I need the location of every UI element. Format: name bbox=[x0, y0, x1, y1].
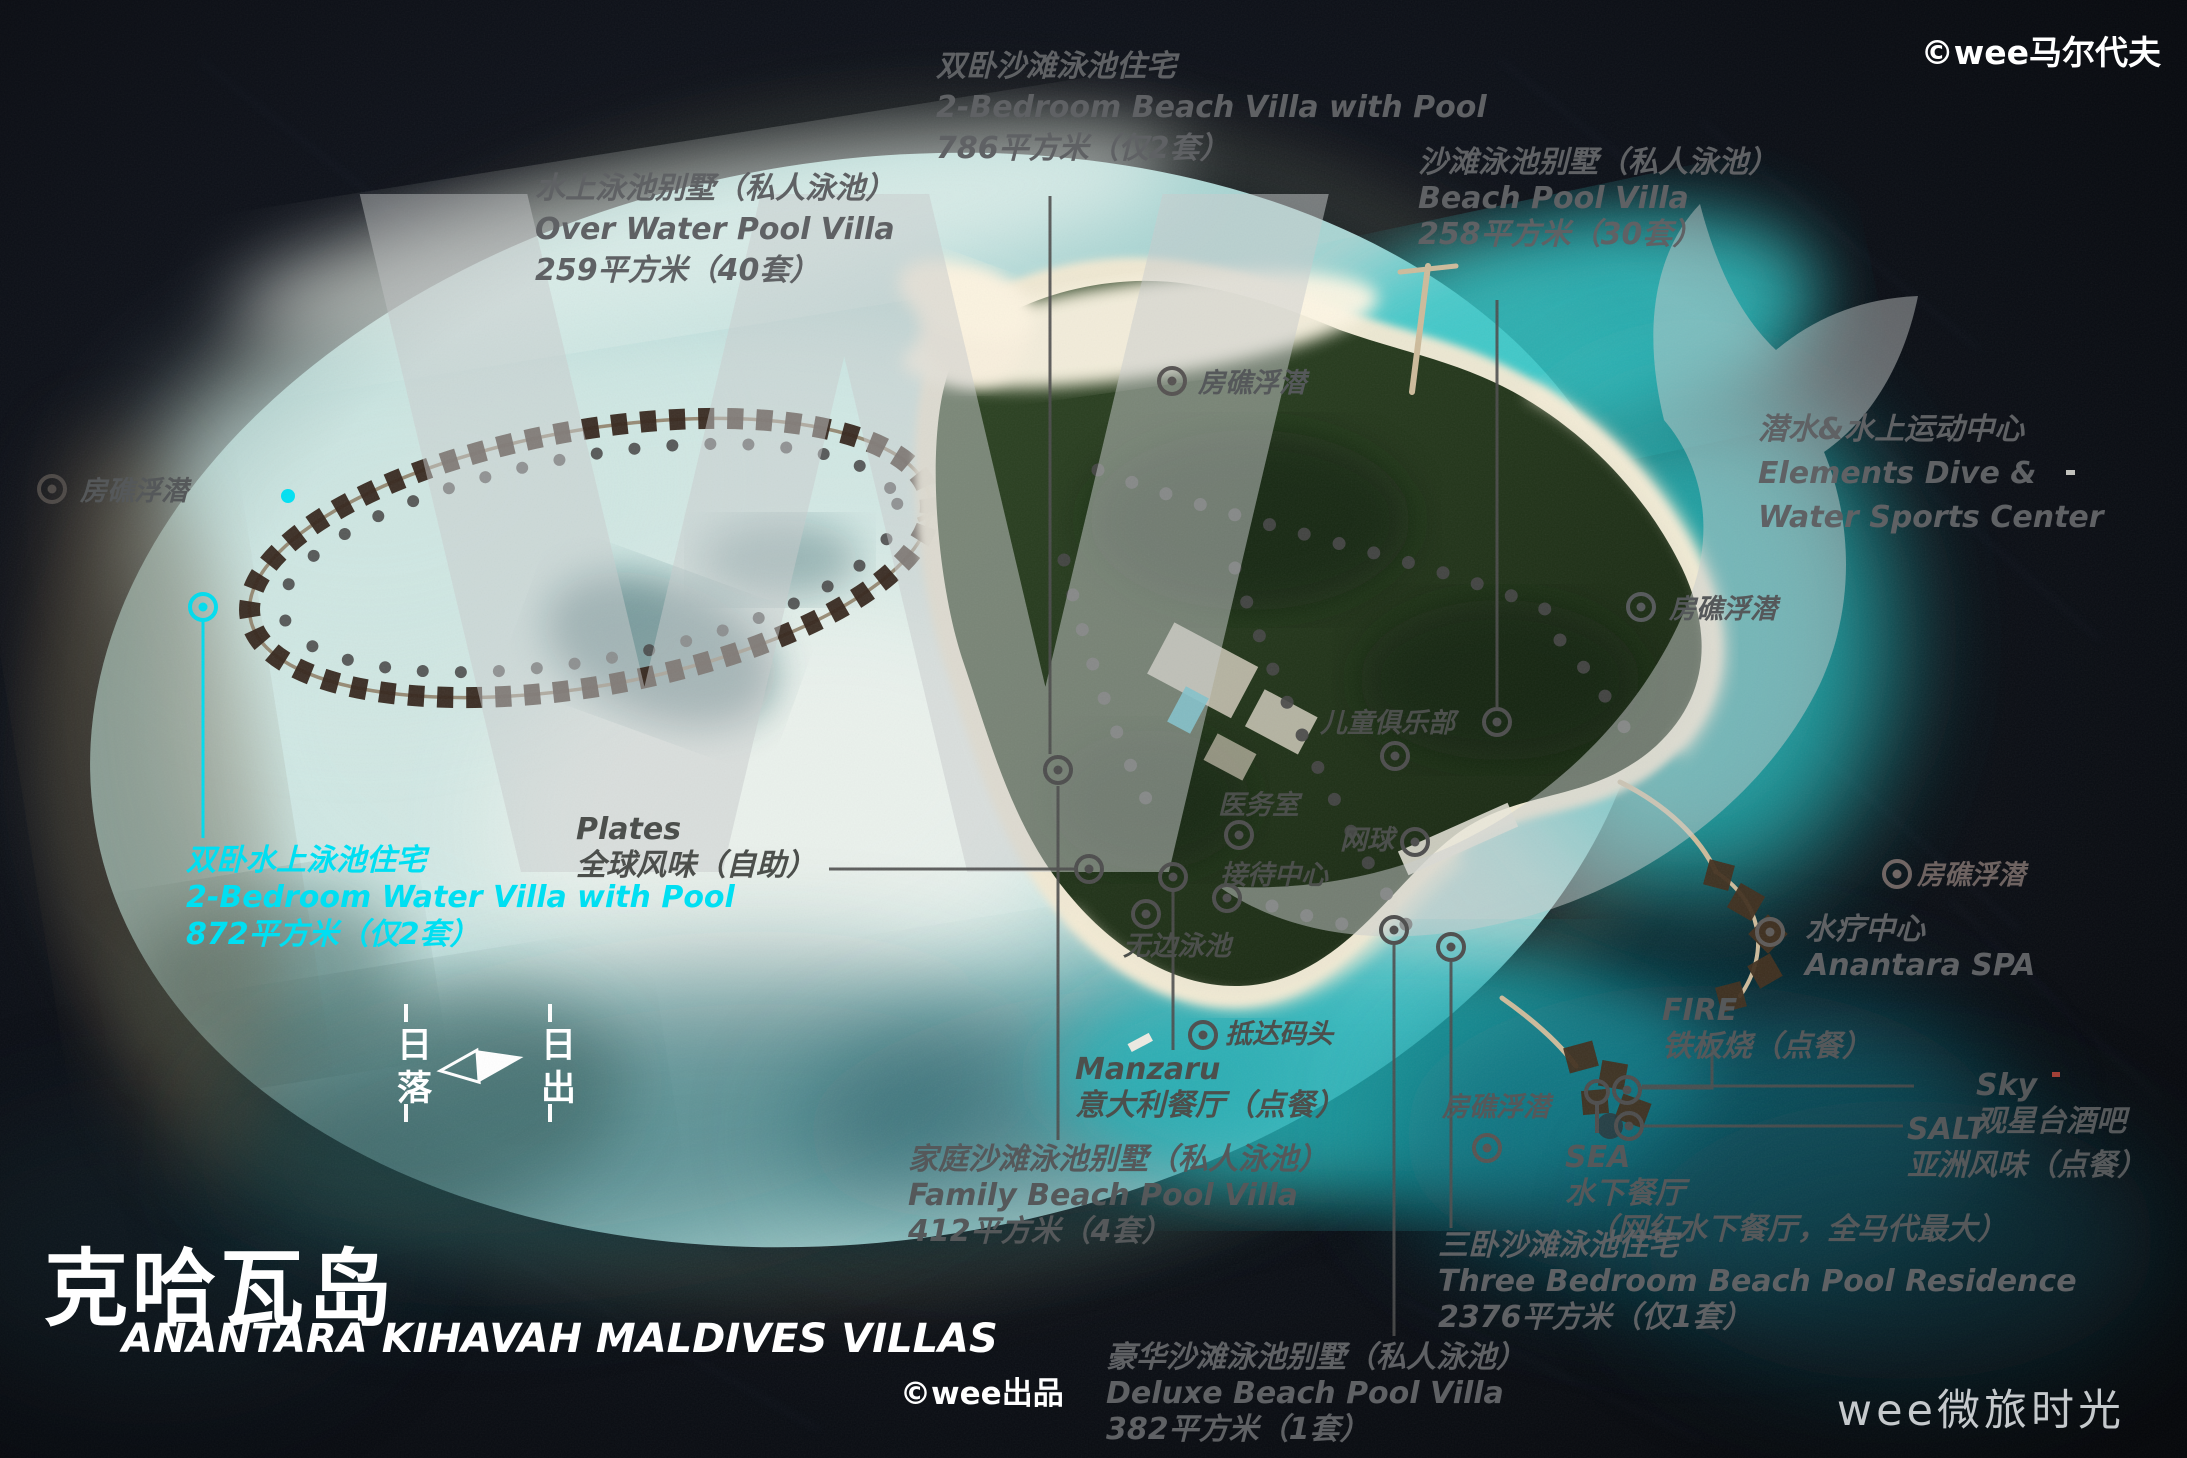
compass-sunrise-label: 日出 bbox=[530, 1026, 581, 1112]
credit-text: ©wee出品 bbox=[900, 1368, 1064, 1413]
label-reception: 接待中心 bbox=[1220, 858, 1328, 894]
label-plates-restaurant: Plates 全球风味（自助） bbox=[576, 812, 816, 884]
watermark-bottom-right: wee微旅时光 bbox=[1837, 1376, 2125, 1438]
label-house-reef-west: 房礁浮潜 bbox=[80, 474, 188, 510]
label-house-reef-southeast: 房礁浮潜 bbox=[1917, 858, 2025, 894]
label-dive-center: 潜水&水上运动中心 Elements Dive & Water Sports C… bbox=[1758, 408, 2104, 540]
label-arrival-jetty: 抵达码头 bbox=[1225, 1017, 1333, 1053]
label-tennis: 网球 bbox=[1340, 823, 1394, 859]
watermark-top-right: ©wee马尔代夫 bbox=[1921, 26, 2161, 74]
label-kids-club: 儿童俱乐部 bbox=[1320, 706, 1455, 742]
label-house-reef-north: 房礁浮潜 bbox=[1198, 366, 1306, 402]
resort-map: W bbox=[0, 0, 2187, 1458]
label-clinic: 医务室 bbox=[1218, 788, 1299, 824]
compass-sunset-label: 日落 bbox=[386, 1026, 437, 1112]
label-house-reef-south: 房礁浮潜 bbox=[1442, 1090, 1550, 1126]
label-family-beach-pool-villa: 家庭沙滩泳池别墅（私人泳池） Family Beach Pool Villa 4… bbox=[908, 1142, 1328, 1250]
label-fire-restaurant: FIRE 铁板烧（点餐） bbox=[1662, 993, 1872, 1065]
label-infinity-pool: 无边泳池 bbox=[1123, 929, 1231, 965]
label-house-reef-east: 房礁浮潜 bbox=[1669, 592, 1777, 628]
label-manzaru-restaurant: Manzaru 意大利餐厅（点餐） bbox=[1075, 1052, 1345, 1124]
label-three-bedroom-residence: 三卧沙滩泳池住宅 Three Bedroom Beach Pool Reside… bbox=[1438, 1228, 2077, 1336]
label-beach-pool-villa: 沙滩泳池别墅（私人泳池） Beach Pool Villa 258平方米（30套… bbox=[1418, 145, 1778, 253]
label-anantara-spa: 水疗中心 Anantara SPA bbox=[1805, 912, 2035, 984]
label-2br-beach-villa: 双卧沙滩泳池住宅 2-Bedroom Beach Villa with Pool… bbox=[936, 46, 1487, 169]
island-title-en: ANANTARA KIHAVAH MALDIVES VILLAS bbox=[122, 1316, 998, 1362]
label-over-water-pool-villa: 水上泳池别墅（私人泳池） Over Water Pool Villa 259平方… bbox=[535, 168, 895, 291]
label-deluxe-beach-pool-villa: 豪华沙滩泳池别墅（私人泳池） Deluxe Beach Pool Villa 3… bbox=[1106, 1340, 1526, 1448]
